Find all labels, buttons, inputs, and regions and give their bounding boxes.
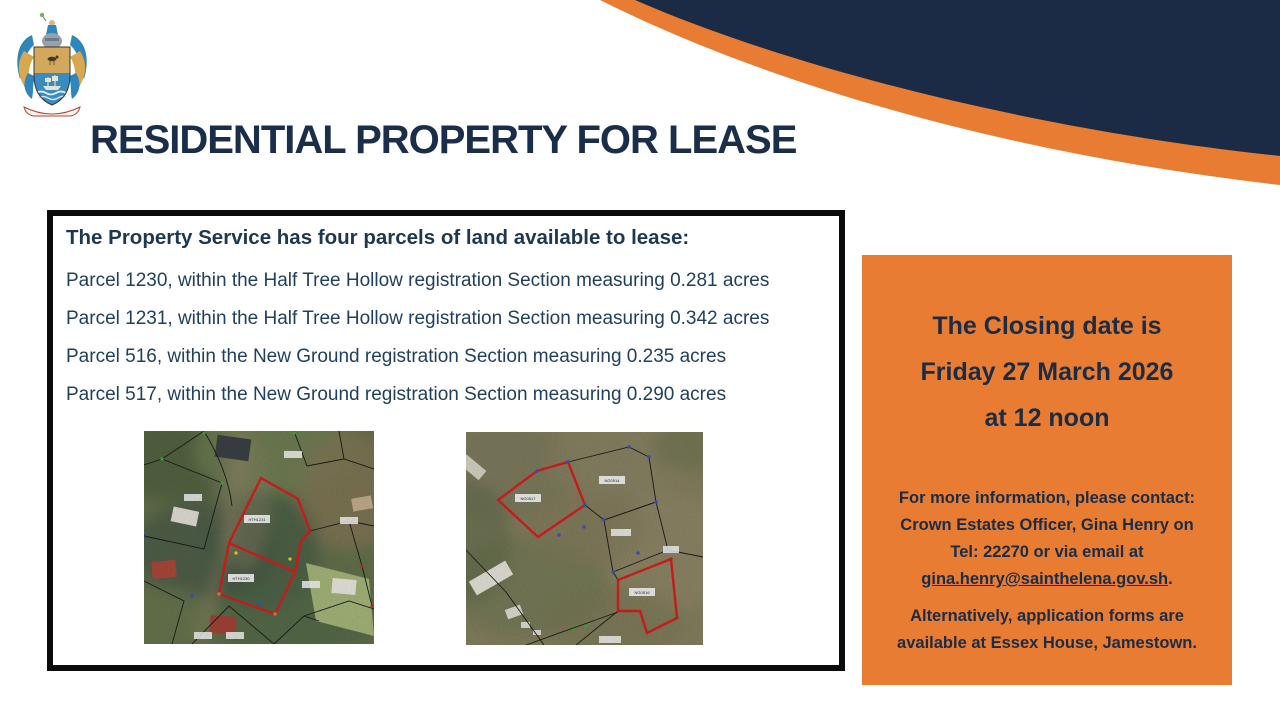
ship-sail-2 xyxy=(52,76,58,81)
parcel-line-516: Parcel 516, within the New Ground regist… xyxy=(66,347,825,366)
closing-panel: The Closing date is Friday 27 March 2026… xyxy=(862,255,1232,685)
header-swoosh-graphic xyxy=(0,0,1280,200)
satellite-grain xyxy=(144,431,374,644)
st-helena-coat-of-arms xyxy=(12,8,92,126)
alternative-block: Alternatively, application forms are ava… xyxy=(862,603,1232,657)
page-title: RESIDENTIAL PROPERTY FOR LEASE xyxy=(90,118,850,163)
crest-sprig-leaf xyxy=(40,13,44,17)
closing-line-1: The Closing date is xyxy=(862,303,1232,349)
ship-sail-1 xyxy=(45,78,51,82)
ship-hull xyxy=(43,86,61,90)
new-ground-aerial-map: NG0517 NG0514 NG0516 xyxy=(466,432,703,645)
motto-scroll xyxy=(24,107,80,116)
parcel-line-1230: Parcel 1230, within the Half Tree Hollow… xyxy=(66,271,825,290)
contact-email-line: gina.henry@sainthelena.gov.sh. xyxy=(862,566,1232,593)
wirebird-icon xyxy=(48,57,57,61)
parcel-line-517: Parcel 517, within the New Ground regist… xyxy=(66,385,825,404)
email-period: . xyxy=(1168,570,1173,588)
closing-line-3: at 12 noon xyxy=(862,395,1232,441)
notice-heading: The Property Service has four parcels of… xyxy=(66,227,825,249)
wirebird-head xyxy=(56,56,59,59)
parcel-line-1231: Parcel 1231, within the Half Tree Hollow… xyxy=(66,309,825,328)
alt-line-2: available at Essex House, Jamestown. xyxy=(862,630,1232,657)
satellite-grain xyxy=(466,432,703,645)
contact-block: For more information, please contact: Cr… xyxy=(862,485,1232,593)
email-link[interactable]: gina.henry@sainthelena.gov.sh xyxy=(921,570,1168,588)
contact-line-2: Crown Estates Officer, Gina Henry on xyxy=(862,512,1232,539)
contact-line-3: Tel: 22270 or via email at xyxy=(862,539,1232,566)
closing-line-2: Friday 27 March 2026 xyxy=(862,349,1232,395)
half-tree-hollow-aerial-map: HTH1231 HTH1230 xyxy=(144,431,374,644)
closing-date-block: The Closing date is Friday 27 March 2026… xyxy=(862,303,1232,441)
flyer-page: RESIDENTIAL PROPERTY FOR LEASE The Prope… xyxy=(0,0,1280,720)
contact-line-1: For more information, please contact: xyxy=(862,485,1232,512)
alt-line-1: Alternatively, application forms are xyxy=(862,603,1232,630)
helm-visor xyxy=(45,38,59,41)
